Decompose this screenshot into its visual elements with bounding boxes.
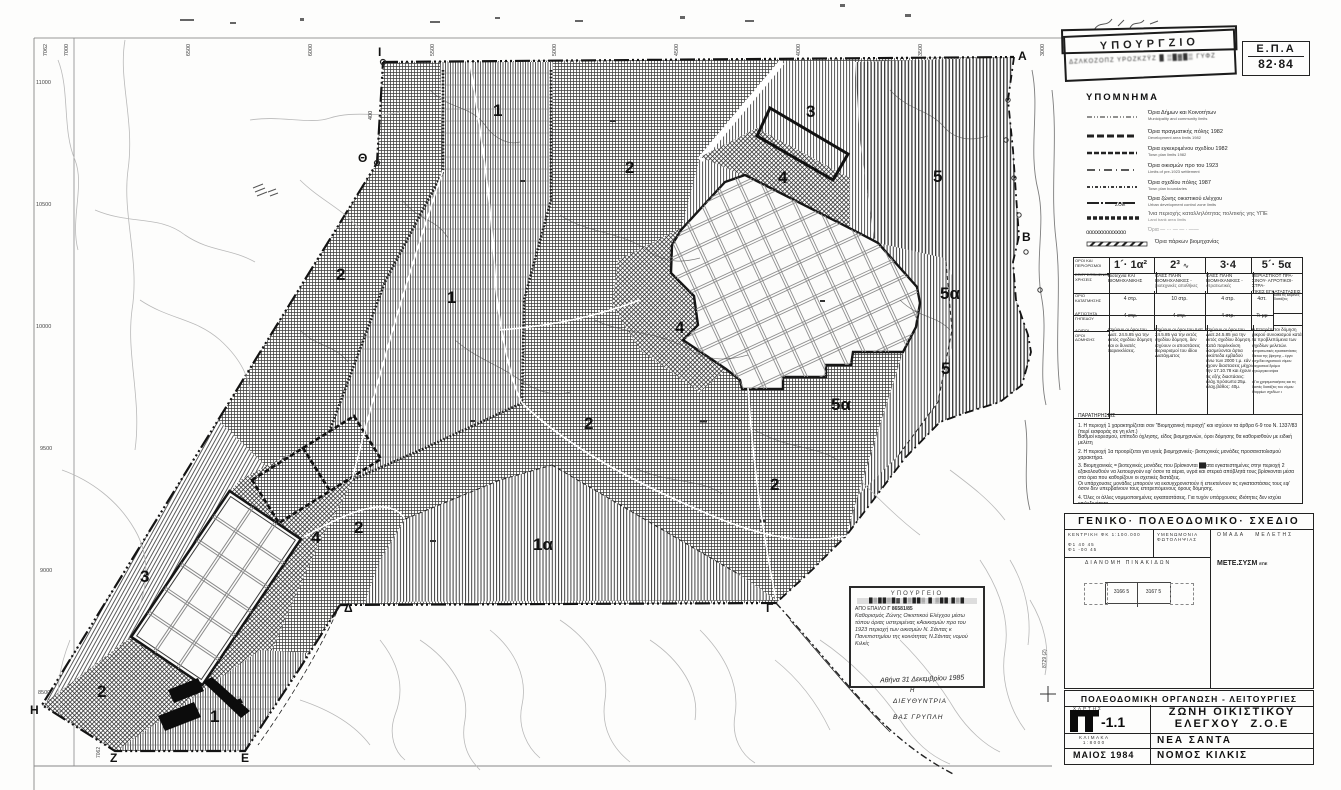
svg-text:2: 2 (354, 518, 363, 537)
svg-text:7062: 7062 (96, 747, 102, 758)
svg-text:2: 2 (770, 475, 779, 494)
svg-text:6500: 6500 (186, 44, 192, 56)
svg-text:oooooooooooooo: oooooooooooooo (1086, 230, 1127, 236)
svg-text:B: B (1022, 230, 1031, 244)
svg-text:8500: 8500 (38, 690, 50, 696)
svg-text:5α: 5α (831, 395, 851, 414)
svg-text:4000: 4000 (796, 44, 802, 56)
svg-text:6000: 6000 (308, 44, 314, 56)
svg-text:5: 5 (941, 359, 950, 378)
svg-text:Δ: Δ (344, 601, 353, 615)
svg-text:Θ: Θ (358, 151, 367, 165)
svg-text:10500: 10500 (36, 202, 51, 208)
svg-text:10000: 10000 (36, 324, 51, 330)
svg-text:A: A (1018, 49, 1027, 63)
svg-text:1: 1 (493, 101, 502, 120)
svg-text:2: 2 (584, 414, 593, 433)
svg-text:I: I (378, 45, 381, 59)
svg-text:7000: 7000 (64, 44, 70, 56)
svg-text:2: 2 (336, 265, 345, 284)
svg-text:9000: 9000 (40, 568, 52, 574)
svg-text:2: 2 (97, 682, 106, 701)
svg-text:4: 4 (675, 318, 685, 337)
svg-text:9500: 9500 (40, 446, 52, 452)
svg-text:Z: Z (110, 751, 117, 765)
svg-text:ΖΟΕ: ΖΟΕ (1115, 202, 1126, 208)
svg-text:5500: 5500 (430, 44, 436, 56)
svg-text:5: 5 (933, 167, 942, 186)
svg-text:4500: 4500 (674, 44, 680, 56)
svg-text:3000: 3000 (1040, 44, 1046, 56)
svg-text:11000: 11000 (36, 80, 51, 86)
svg-text:4: 4 (311, 528, 321, 547)
svg-text:1: 1 (447, 288, 456, 307)
svg-text:3: 3 (806, 102, 815, 121)
svg-text:400: 400 (368, 111, 374, 120)
svg-text:4: 4 (778, 168, 788, 187)
svg-text:5000: 5000 (552, 44, 558, 56)
svg-text:2: 2 (625, 158, 634, 177)
svg-text:Γ: Γ (766, 601, 774, 615)
svg-text:1α: 1α (533, 535, 553, 554)
svg-text:7062: 7062 (43, 44, 49, 56)
svg-text:E: E (241, 751, 249, 765)
svg-text:H: H (30, 703, 39, 717)
svg-text:1: 1 (210, 707, 219, 726)
svg-text:3: 3 (140, 567, 149, 586)
svg-text:5α: 5α (940, 284, 960, 303)
svg-text:3500: 3500 (918, 44, 924, 56)
